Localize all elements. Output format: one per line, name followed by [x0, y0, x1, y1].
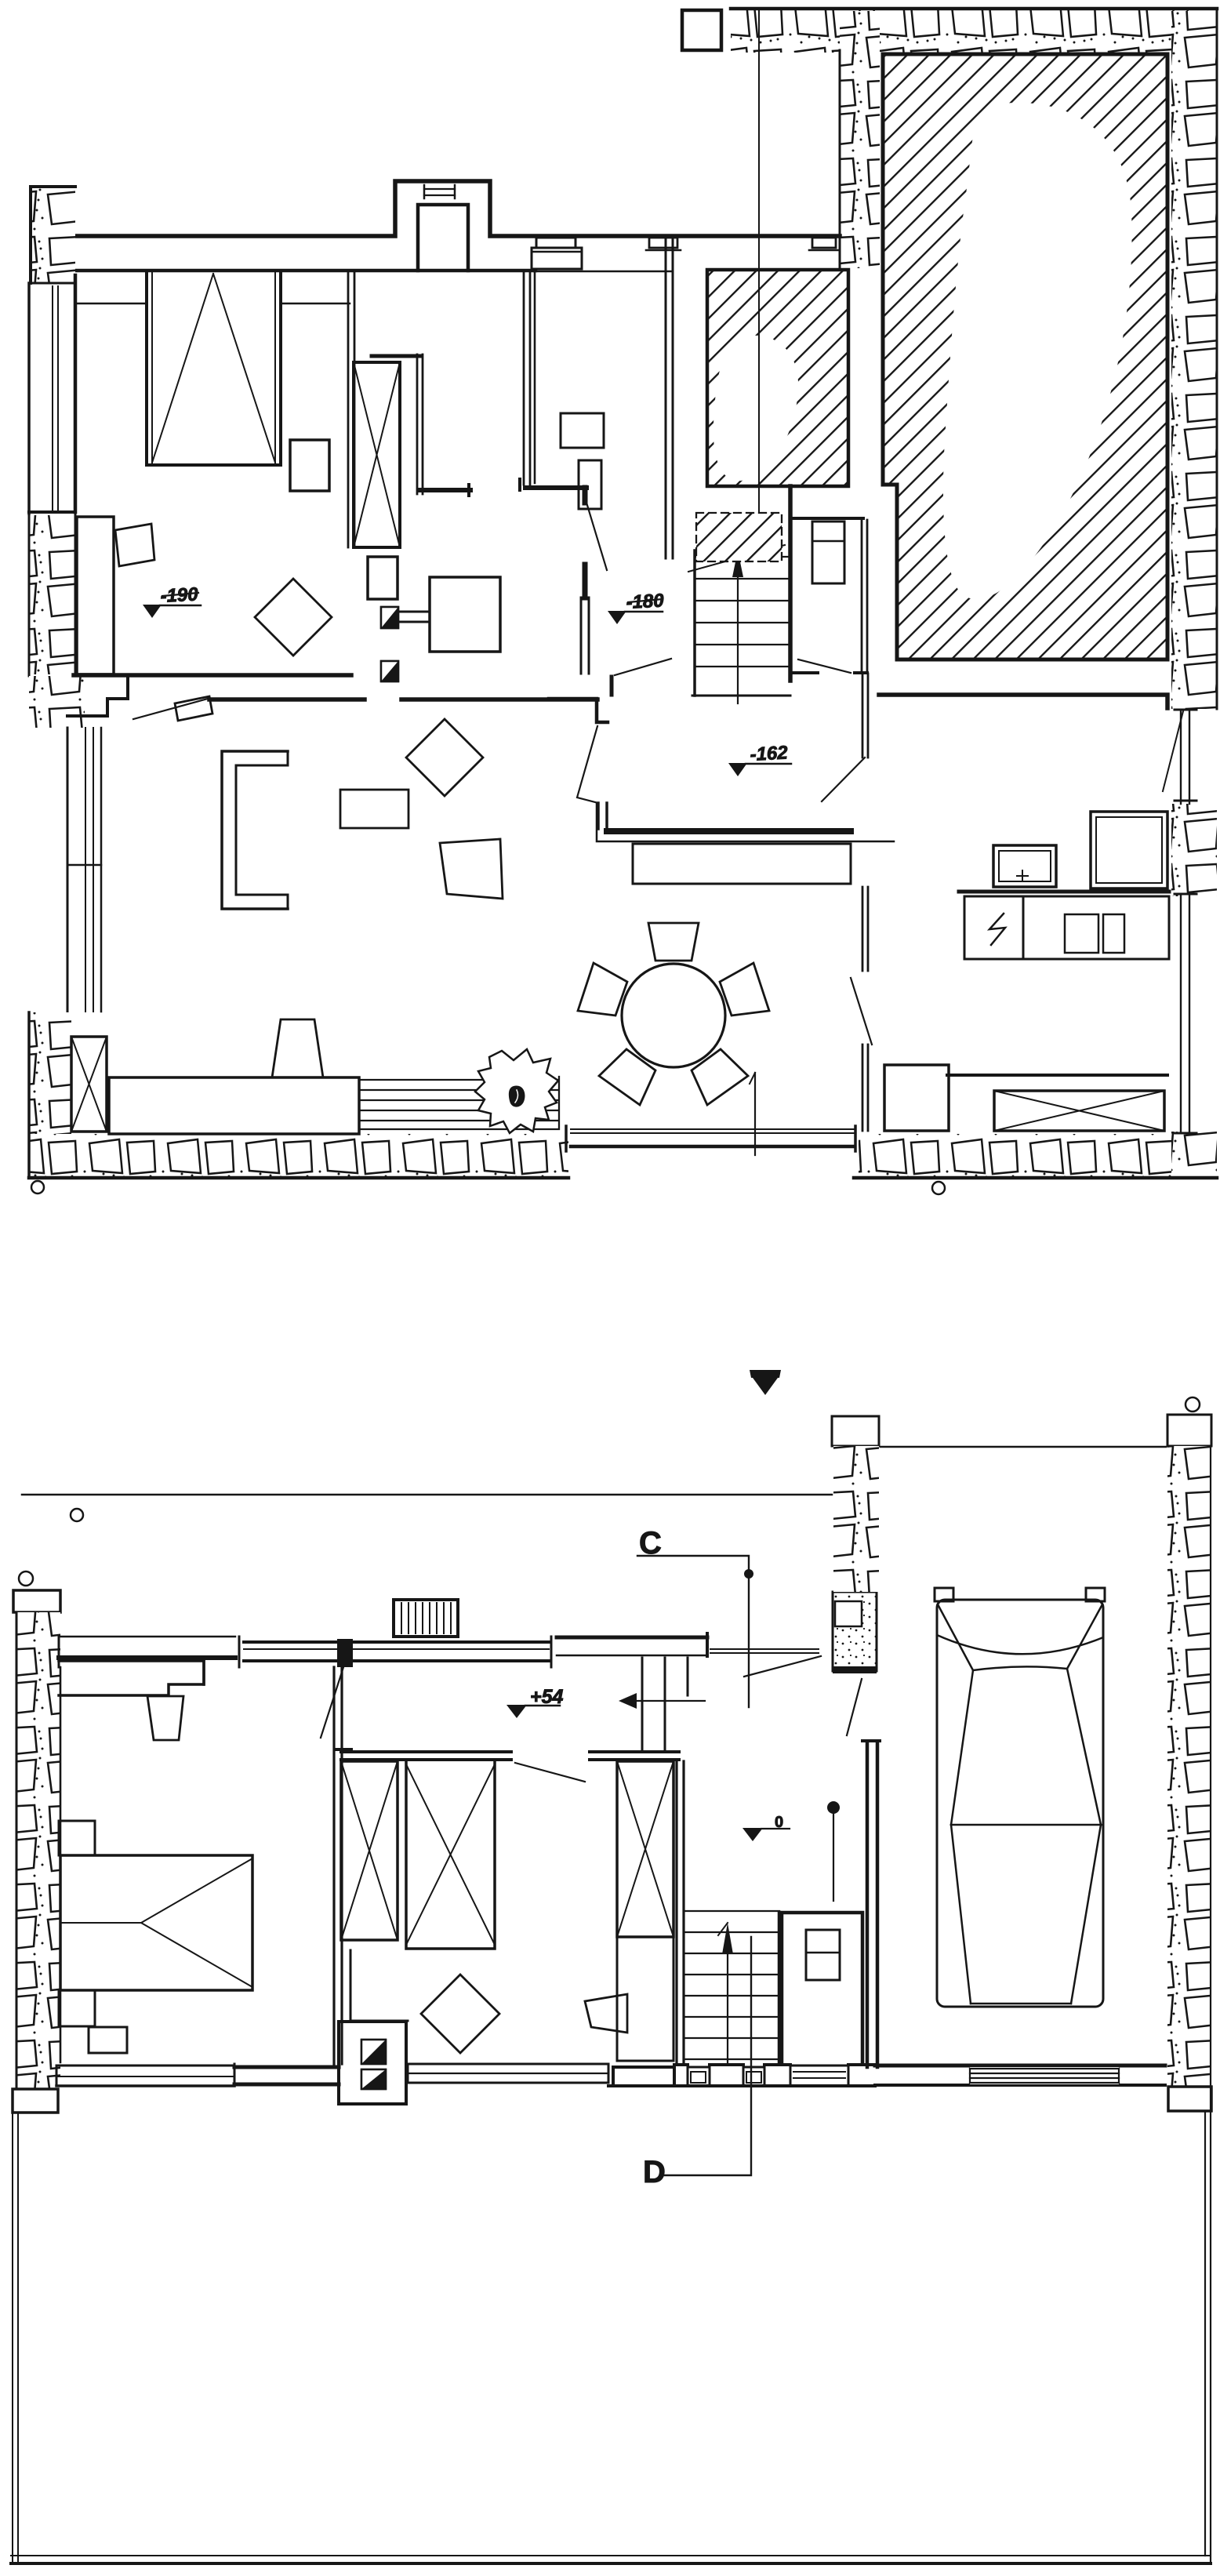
svg-text:-162: -162: [750, 742, 789, 765]
svg-text:+54: +54: [530, 1686, 564, 1708]
svg-text:D: D: [643, 2155, 666, 2189]
svg-text:0: 0: [775, 1814, 783, 1831]
